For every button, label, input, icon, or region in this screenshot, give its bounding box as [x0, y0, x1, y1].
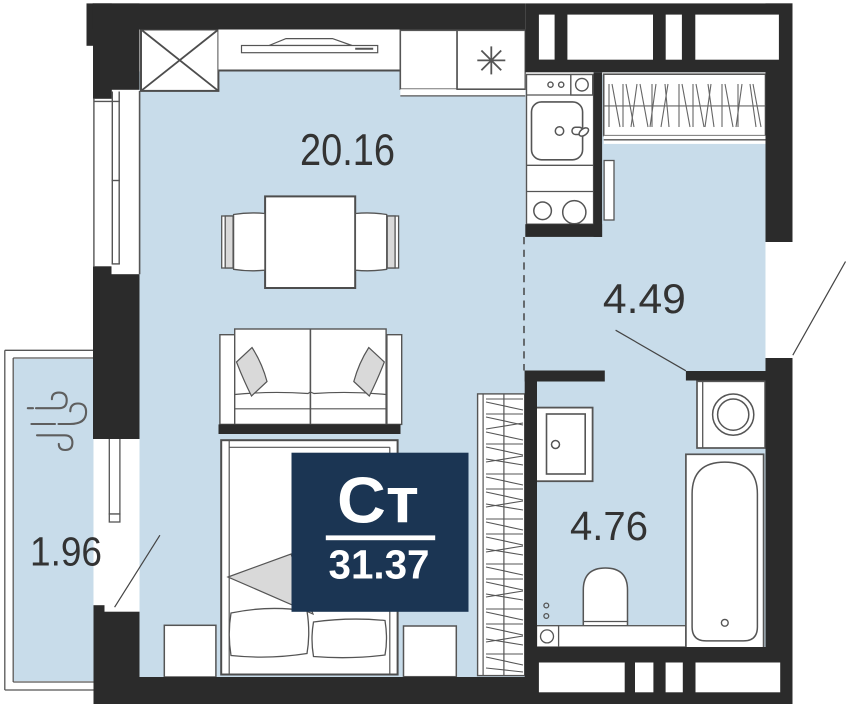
svg-text:1.96: 1.96	[30, 528, 102, 574]
svg-text:4.76: 4.76	[570, 503, 648, 549]
svg-text:Ст: Ст	[337, 465, 419, 537]
svg-text:20.16: 20.16	[300, 126, 395, 175]
svg-text:31.37: 31.37	[329, 542, 430, 588]
svg-text:4.49: 4.49	[603, 275, 686, 322]
